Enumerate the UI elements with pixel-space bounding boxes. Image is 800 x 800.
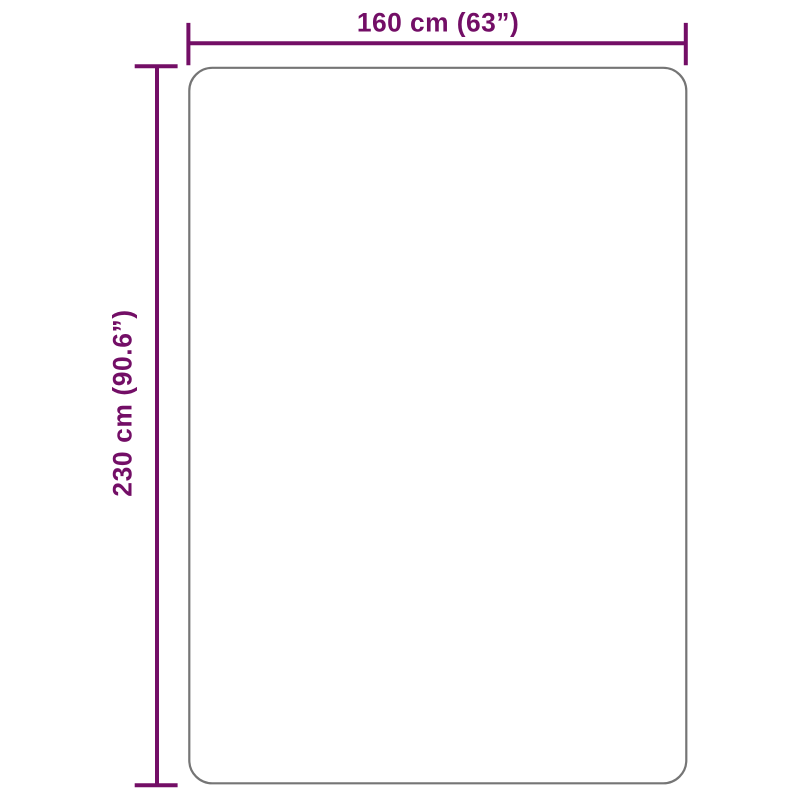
svg-text:230 cm (90.6”): 230 cm (90.6”) bbox=[108, 309, 138, 496]
svg-text:160 cm (63”): 160 cm (63”) bbox=[357, 8, 519, 38]
